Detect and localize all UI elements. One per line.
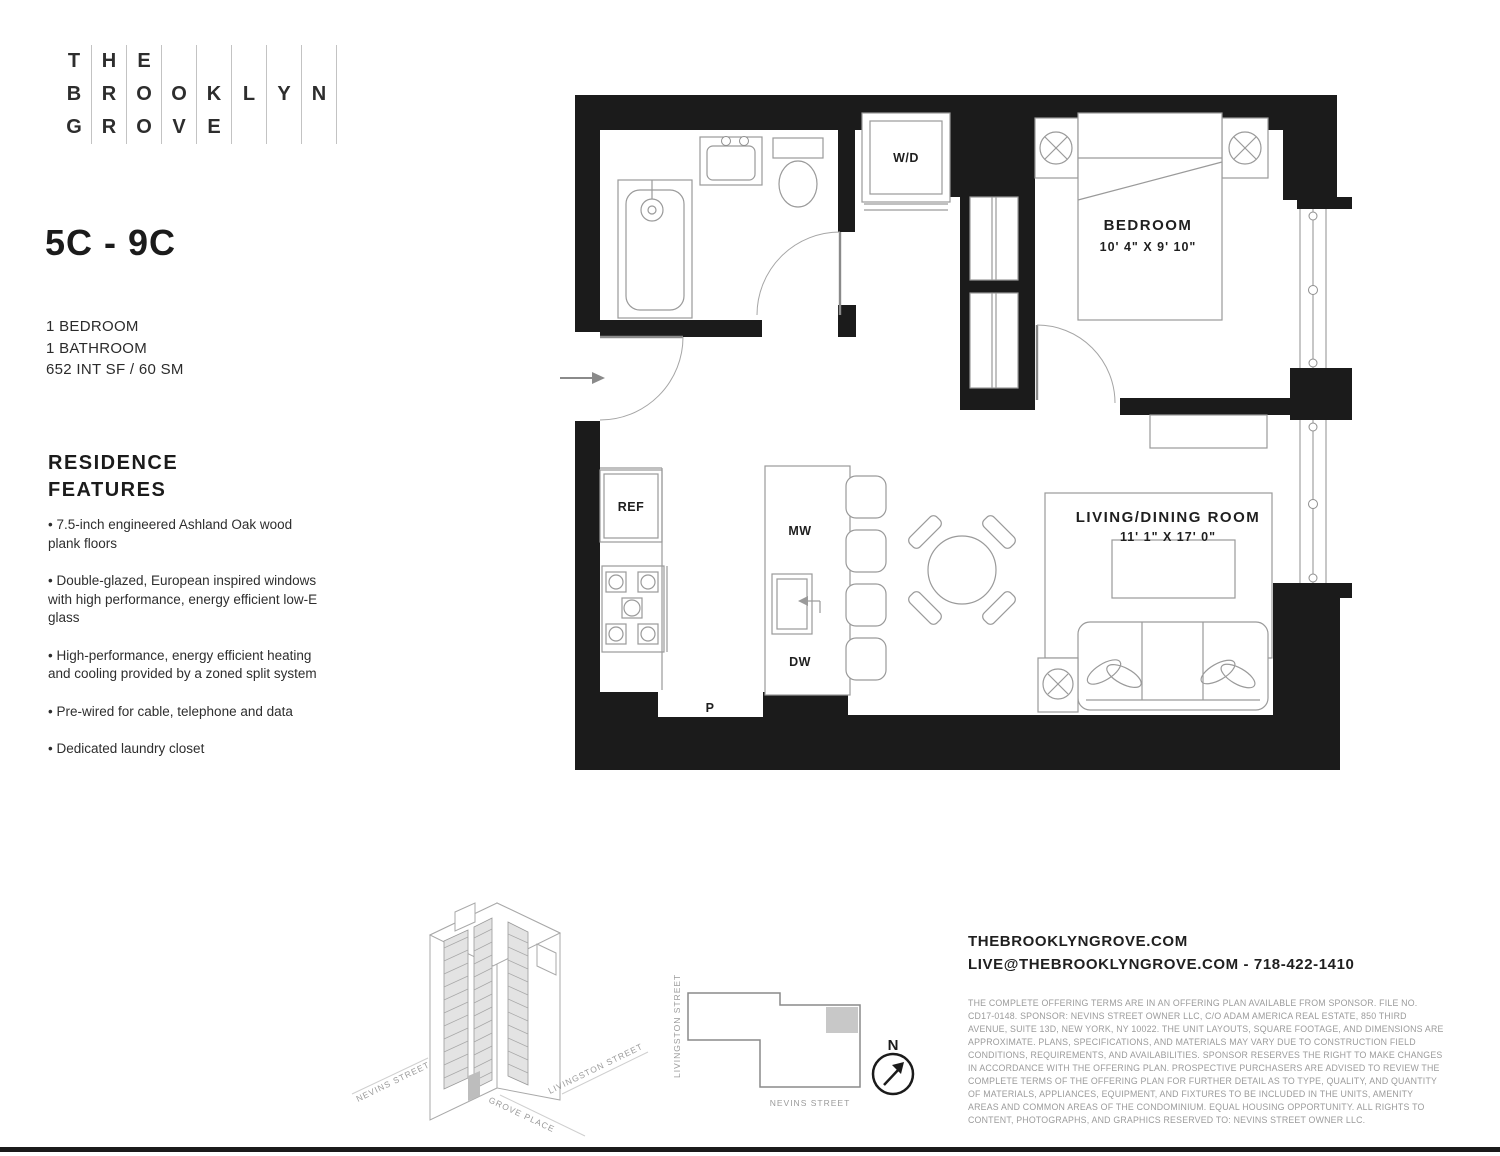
legal-disclaimer: THE COMPLETE OFFERING TERMS ARE IN AN OF…	[968, 997, 1444, 1127]
hall-closets	[970, 197, 1018, 388]
pantry-label: P	[706, 701, 715, 715]
entry-arrow-icon	[592, 372, 605, 384]
axon-nevins-street-label: NEVINS STREET	[354, 1060, 431, 1104]
dresser	[1150, 415, 1267, 448]
washer-dryer-label: W/D	[893, 151, 919, 165]
site-plan: LIVINGSTON STREET NEVINS STREET	[672, 974, 860, 1108]
floor-plan-drawing: W/D BEDROO	[0, 0, 1500, 1156]
kitchen: REF MW DW	[600, 466, 886, 717]
bathtub	[618, 180, 692, 318]
refrigerator: REF	[600, 470, 662, 542]
pantry: P	[658, 690, 763, 717]
bedroom: BEDROOM 10' 4" X 9' 10"	[1035, 113, 1268, 448]
laundry-closet: W/D	[862, 113, 950, 210]
bathroom-sink	[700, 137, 762, 186]
side-table	[1038, 658, 1078, 712]
entry-door	[560, 337, 683, 420]
north-arrow: N	[873, 1037, 913, 1094]
microwave-label: MW	[788, 524, 811, 538]
north-label: N	[888, 1037, 899, 1054]
living-dining-room: LIVING/DINING ROOM 11' 1" X 17' 0"	[907, 493, 1272, 712]
website-text: THEBROOKLYNGROVE.COM	[968, 931, 1355, 954]
sofa	[1078, 622, 1268, 710]
axon-grove-place-label: GROVE PLACE	[487, 1095, 556, 1134]
island-stools	[846, 476, 886, 680]
dining-table	[907, 514, 1018, 627]
nightstand	[1035, 118, 1078, 178]
email-phone-text: LIVE@THEBROOKLYNGROVE.COM - 718-422-1410	[968, 954, 1355, 977]
building-axon: NEVINS STREET LIVINGSTON STREET GROVE PL…	[352, 903, 648, 1136]
living-room-dimensions: 11' 1" X 17' 0"	[1120, 530, 1216, 544]
living-room-label: LIVING/DINING ROOM	[1076, 509, 1261, 526]
bedroom-dimensions: 10' 4" X 9' 10"	[1100, 240, 1197, 254]
dishwasher-label: DW	[789, 655, 811, 669]
nightstand	[1222, 118, 1268, 178]
toilet	[773, 138, 823, 207]
refrigerator-label: REF	[618, 500, 645, 514]
bathroom-door	[757, 232, 840, 315]
contact-block: THEBROOKLYNGROVE.COM LIVE@THEBROOKLYNGRO…	[968, 931, 1355, 976]
bathroom	[618, 137, 840, 319]
unit-location-highlight	[826, 1007, 858, 1033]
coffee-table	[1112, 540, 1235, 598]
floorplan-brochure-page: { "logo": { "grid": [["T","B","G"],["H",…	[0, 0, 1500, 1156]
site-livingston-street-label: LIVINGSTON STREET	[672, 974, 682, 1078]
stove	[602, 566, 667, 652]
bedroom-label: BEDROOM	[1104, 217, 1193, 234]
kitchen-island: MW DW	[765, 466, 850, 695]
site-nevins-street-label: NEVINS STREET	[770, 1098, 851, 1108]
bedroom-door	[1037, 325, 1115, 403]
page-bottom-rule	[0, 1147, 1500, 1152]
axon-livingston-street-label: LIVINGSTON STREET	[546, 1041, 644, 1096]
